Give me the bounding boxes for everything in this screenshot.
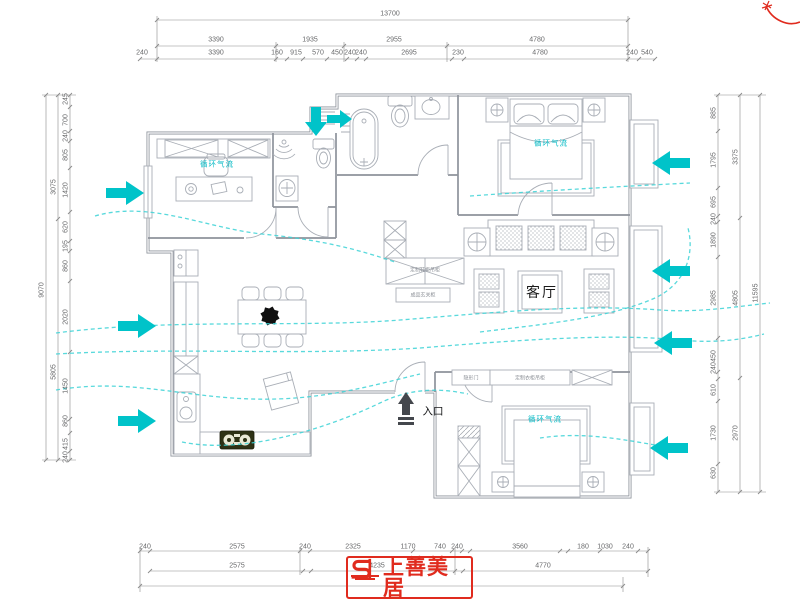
dim-label: 4770 [535,563,551,570]
cabinet-label-bottom: 成品玄关柜 [410,292,435,299]
dim-label: 1030 [597,544,613,551]
dim-label: 2575 [229,544,245,551]
brand-stamp: 上善美居 [346,556,473,599]
airflow-label-master: 循环气流 [534,138,568,149]
dim-label: 3375 [733,149,740,165]
dim-label: 630 [711,467,718,479]
dim-label: 240 [711,362,718,374]
dim-label: 240 [626,50,638,57]
dim-label: 885 [711,107,718,119]
dim-label: 3390 [208,50,224,57]
dim-label: 805 [63,149,70,161]
dim-label: 240 [63,130,70,142]
dim-label: 540 [641,50,653,57]
dim-label: 700 [63,114,70,126]
entrance-arrow [398,392,414,425]
cabinet-label-top: 定制鞋柜吊柜 [410,267,440,274]
dim-label: 415 [63,438,70,450]
dim-label: 240 [63,451,70,463]
dim-label: 240 [139,544,151,551]
dim-label: 5805 [51,364,58,380]
dim-label: 915 [290,50,302,57]
dim-label: 240 [299,544,311,551]
study-furniture [157,139,270,201]
arrow-left-1 [106,181,144,205]
dim-label: 1795 [711,152,718,168]
dim-label: 695 [711,196,718,208]
dim-label: 160 [271,50,283,57]
dim-label: 13700 [380,11,399,18]
arrow-right-4 [650,436,688,460]
floorplan-canvas: 13700 3390 1935 2955 4780 240 3390 160 9… [0,0,800,606]
dim-label: 2985 [711,290,718,306]
dim-label: 240 [622,544,634,551]
bedroom2-furniture [452,370,612,497]
dim-label: 1935 [302,37,318,44]
dim-label: 11595 [753,284,760,303]
dim-label: 1170 [400,544,415,551]
airflow-label-study: 循环气流 [200,159,234,170]
bedroom2-door-label: 隐形门 [463,375,478,382]
dim-label: 240 [136,50,148,57]
hall-cabinets [384,221,464,302]
dim-label: 230 [452,50,464,57]
dim-label: 620 [63,221,70,233]
dim-label: 450 [331,50,343,57]
brand-glyph [351,575,379,581]
dim-label: 450 [711,350,718,362]
dim-label: 610 [711,384,718,396]
arrow-left-3 [118,409,156,433]
dining-furniture [174,250,306,374]
dim-label: 1420 [63,182,70,198]
dim-label: 3075 [51,179,58,195]
dim-label: 4805 [733,290,740,306]
dim-label: 3560 [512,544,528,551]
dim-label: 240 [344,50,356,57]
dim-label: 740 [434,544,446,551]
dim-label: 570 [312,50,324,57]
dim-label: 860 [63,260,70,272]
dim-label: 4780 [532,50,548,57]
dim-label: 1450 [63,378,70,394]
dim-label: 1730 [711,425,718,441]
brand-glyph-icon [348,558,376,584]
kitchen-furniture [174,372,310,454]
dim-label: 2575 [229,563,245,570]
dim-label: 240 [711,213,718,225]
dim-label: 2955 [386,37,402,44]
bedroom2-wardrobe-label: 定制衣柜吊柜 [515,375,545,382]
airflow-label-bedroom2: 循环气流 [528,414,562,425]
arrow-top-right [327,110,352,128]
bathroom1-fixtures [273,139,334,201]
dim-label: 860 [63,415,70,427]
dim-label: 2970 [733,425,740,441]
dim-label: 2020 [63,309,70,325]
dim-label: 245 [63,93,70,105]
dim-label: 2695 [401,50,417,57]
brand-name: 上善美居 [383,557,468,599]
arrow-left-2 [118,314,156,338]
room-label-living: 客厅 [526,282,558,302]
dim-label: 1890 [711,232,718,248]
dim-label: 180 [577,544,589,551]
dim-label: 9070 [39,282,46,298]
entrance-label: 入口 [423,404,444,419]
airflow-curves [56,183,770,445]
floor-plan-drawing [0,0,800,606]
dim-label: 2325 [345,544,361,551]
dim-label: 195 [63,240,70,252]
bathroom2-fixtures [350,96,449,169]
dim-label: 240 [451,544,463,551]
dim-label: 3390 [208,37,224,44]
corner-stamp-fragment [762,1,800,24]
dim-label: 4780 [529,37,545,44]
dim-label: 240 [355,50,367,57]
